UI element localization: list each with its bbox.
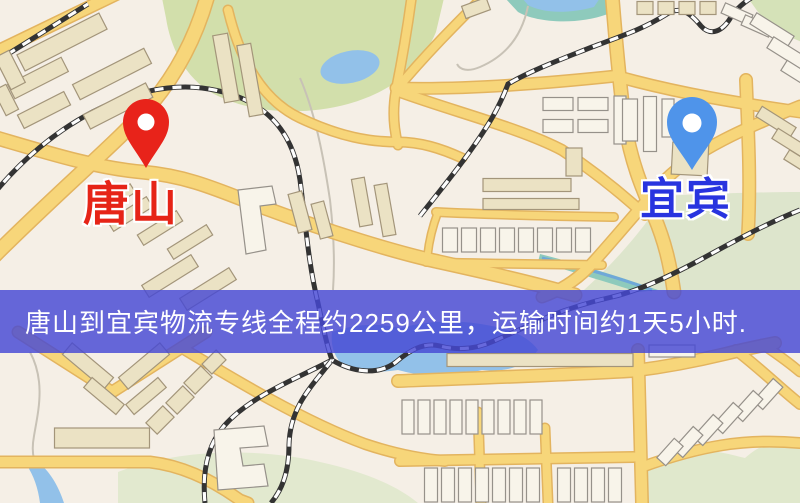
building — [55, 428, 150, 448]
building — [527, 468, 540, 502]
route-info-text: 唐山到宜宾物流专线全程约2259公里，运输时间约1天5小时. — [25, 303, 747, 340]
building — [514, 400, 526, 434]
building — [609, 468, 622, 502]
building — [679, 2, 695, 15]
building — [623, 99, 638, 141]
building — [447, 354, 633, 367]
building — [482, 400, 494, 434]
building — [519, 228, 534, 252]
building — [442, 468, 455, 502]
building — [637, 2, 653, 15]
building — [483, 179, 571, 192]
building — [538, 228, 553, 252]
building — [578, 120, 608, 133]
building — [510, 468, 523, 502]
building — [483, 199, 579, 210]
building — [644, 97, 657, 152]
building — [418, 400, 430, 434]
building — [576, 228, 591, 252]
building — [575, 468, 588, 502]
building — [443, 228, 458, 252]
building — [459, 468, 472, 502]
building — [500, 228, 515, 252]
destination-label: 宜宾 — [640, 178, 732, 222]
building — [402, 400, 414, 434]
building — [566, 148, 582, 176]
building — [578, 98, 608, 111]
building — [493, 468, 506, 502]
building — [462, 228, 477, 252]
building — [700, 2, 716, 15]
building — [434, 400, 446, 434]
route-map: 唐山 宜宾 唐山到宜宾物流专线全程约2259公里，运输时间约1天5小时. — [0, 0, 800, 503]
building — [530, 400, 542, 434]
building — [592, 468, 605, 502]
building — [466, 400, 478, 434]
building — [425, 468, 438, 502]
origin-label: 唐山 — [83, 181, 179, 227]
building — [543, 98, 573, 111]
building — [450, 400, 462, 434]
building — [476, 468, 489, 502]
building — [481, 228, 496, 252]
building — [658, 2, 674, 15]
building — [557, 228, 572, 252]
building — [558, 468, 571, 502]
building — [543, 120, 573, 133]
building — [498, 400, 510, 434]
route-info-banner: 唐山到宜宾物流专线全程约2259公里，运输时间约1天5小时. — [0, 290, 800, 353]
map-base-layer — [0, 0, 800, 503]
